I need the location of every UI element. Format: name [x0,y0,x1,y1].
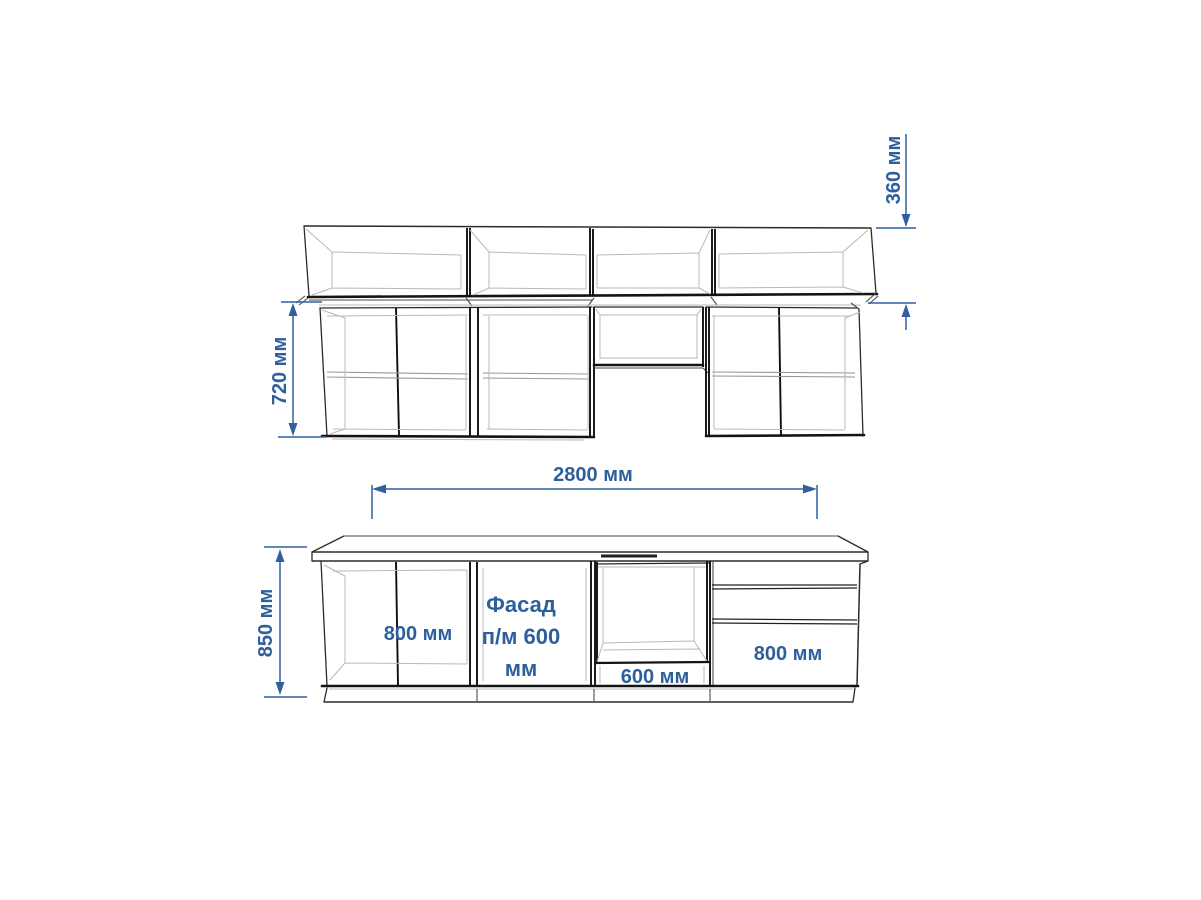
dim-label-720: 720 мм [269,337,291,406]
dimension-360: 360 мм [868,134,916,330]
dimension-850: 850 мм [255,547,307,697]
base-cabinet-left-800: 800 мм [321,561,477,686]
upper-box-2-interior [470,230,586,295]
base-cabinet-oven-niche: 600 мм [595,561,709,688]
wall-cabinet-right-double-door [706,303,864,436]
dim-label-850: 850 мм [255,589,277,658]
upper-box-3-interior [597,230,710,294]
wall-cabinets-upper-tier [296,226,878,306]
label-facade-line1: Фасад [486,592,556,617]
wall-cabinet-hood-short [594,307,708,373]
base-cabinet-drawers-800: 800 мм [710,561,868,686]
base-cabinets: 800 мм Фасад п/м 600 мм 600 мм [321,561,868,702]
upper-box-4-interior [719,230,868,293]
dimension-720: 720 мм [269,302,326,437]
dimension-2800: 2800 мм [372,464,817,519]
wall-cabinets-lower-tier [319,303,864,440]
dim-label-2800: 2800 мм [553,464,633,486]
label-facade-line2: п/м 600 [482,624,561,649]
countertop [312,536,868,561]
wall-cabinet-600-single-door [483,307,594,436]
kitchen-dimension-drawing: 360 мм 720 мм 2800 мм 850 мм [0,0,1201,900]
upper-box-1-interior [306,229,461,295]
dim-label-360: 360 мм [883,136,905,205]
label-drawer-cabinet-width: 800 мм [754,643,823,665]
label-left-cabinet-width: 800 мм [384,623,453,645]
base-cabinet-dishwasher-facade: Фасад п/м 600 мм [482,561,595,686]
label-facade-line3: мм [505,656,538,681]
base-plinth [322,686,858,702]
drawing-svg: 360 мм 720 мм 2800 мм 850 мм [0,0,1201,900]
